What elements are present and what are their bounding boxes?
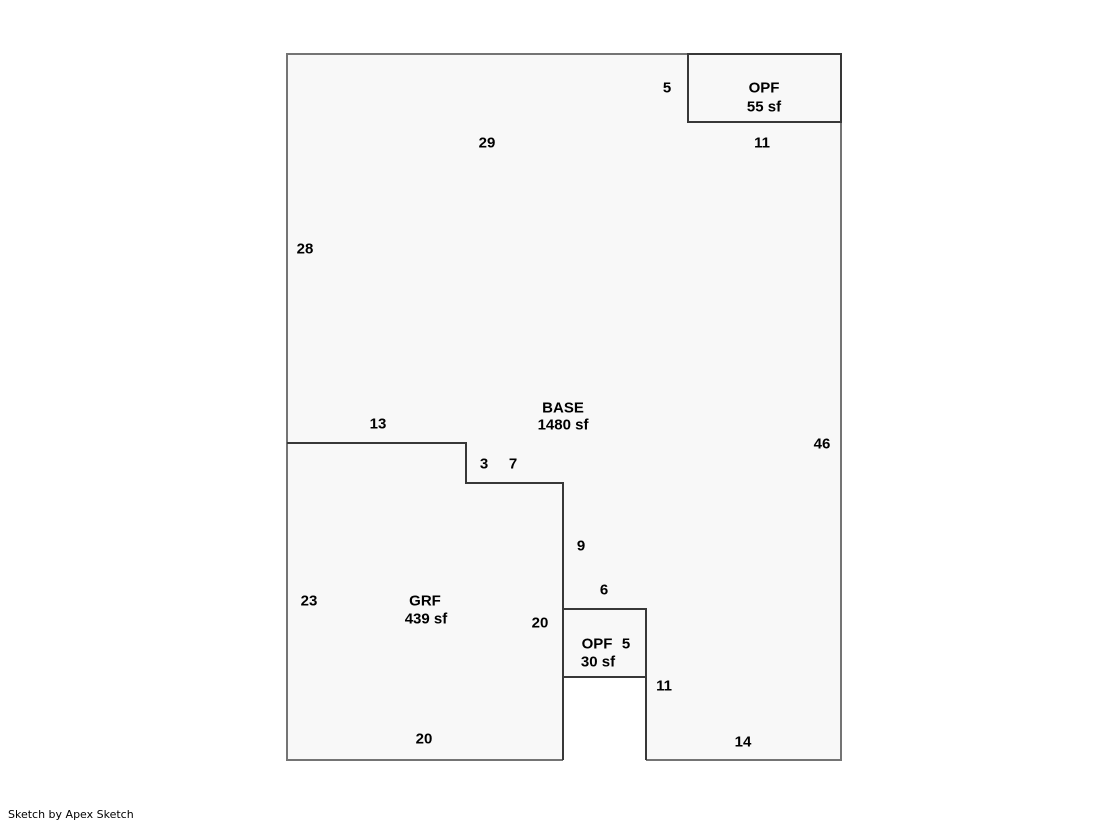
floor-plan-sketch: 5OPF55 sf291128BASE1480 sf1346379623GRF4… (0, 0, 1119, 821)
dimension-label: 5 (622, 636, 630, 653)
dimension-label: 5 (663, 80, 671, 97)
dimension-label: 13 (370, 416, 387, 433)
area-size-label: 1480 sf (538, 417, 590, 434)
dimension-label: 23 (301, 593, 318, 610)
dimension-label: 11 (656, 678, 672, 695)
dimension-label: 14 (735, 734, 752, 751)
area-name-label: OPF (582, 636, 613, 653)
area-size-label: 55 sf (747, 99, 782, 116)
area-name-label: BASE (542, 400, 584, 417)
dimension-label: 46 (814, 436, 831, 453)
dimension-label: 11 (754, 135, 770, 152)
dimension-label: 29 (479, 135, 496, 152)
dimension-label: 20 (416, 731, 433, 748)
sketch-credit: Sketch by Apex Sketch (8, 808, 134, 821)
dimension-label: 6 (600, 582, 608, 599)
area-size-label: 30 sf (581, 654, 616, 671)
dimension-label: 7 (509, 456, 517, 473)
dimension-label: 3 (480, 456, 488, 473)
area-name-label: OPF (749, 80, 780, 97)
dimension-label: 9 (577, 538, 585, 555)
dimension-label: 20 (532, 615, 549, 632)
page: 5OPF55 sf291128BASE1480 sf1346379623GRF4… (0, 0, 1119, 821)
area-size-label: 439 sf (405, 611, 449, 628)
area-name-label: GRF (409, 593, 441, 610)
dimension-label: 28 (297, 241, 314, 258)
